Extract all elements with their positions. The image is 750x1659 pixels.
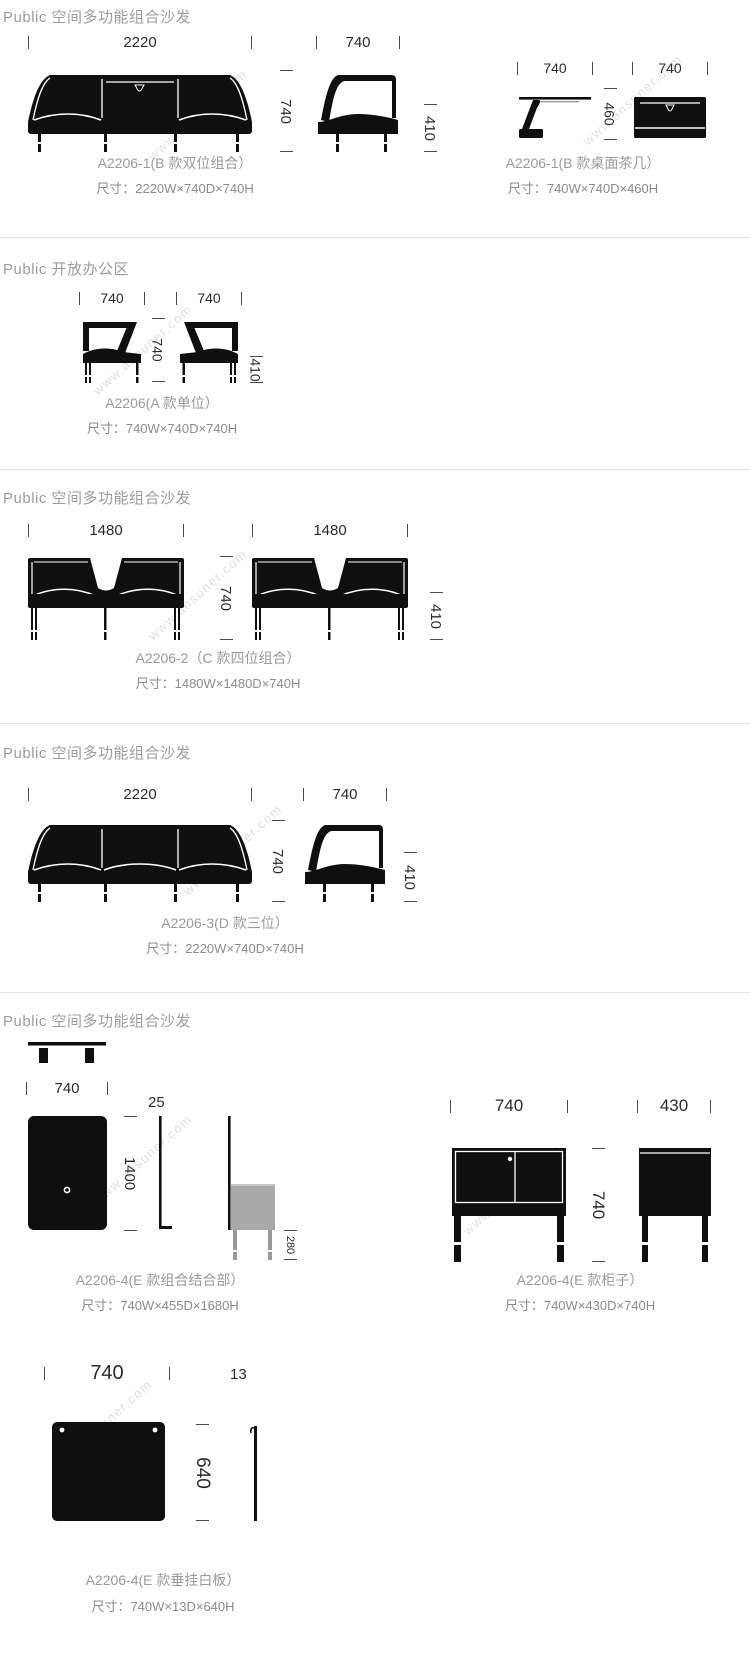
dim-value: 410 [422,115,439,140]
dim-sofa-seat-height: 410 [400,852,420,902]
whiteboard-side-view [248,1424,260,1521]
dim-value: 740 [100,290,123,306]
dim-tick [303,788,304,801]
product-label: A2206-4(E 款组合结合部） [40,1270,280,1290]
dim-tick [404,852,417,853]
dim-value: 740 [588,1191,608,1219]
dim-value: 740 [54,1080,79,1097]
dim-value: 740 [332,786,357,803]
dim-cabinet-height: 740 [588,1148,608,1262]
section-1-header: Public 空间多功能组合沙发 [3,6,191,27]
dim-tick [424,151,437,152]
section-divider [0,469,750,470]
dim-tick [316,36,317,49]
dim-value: 1400 [122,1157,139,1190]
product-label: A2206-4(E 款垂挂白板） [43,1570,283,1590]
panel-cabinet-side-view [226,1116,278,1261]
panel-front-view [28,1116,107,1230]
product-label: A2206-2（C 款四位组合） [98,648,338,668]
dim-cabinet-width: 740 [450,1096,568,1116]
dim-value: 280 [284,1236,296,1254]
dim-tick [280,151,293,152]
dim-chair-height: 740 [148,318,168,382]
dim-tick [284,1230,297,1231]
product-size: 尺寸：2220W×740D×740H [105,938,345,957]
dim-board-width: 740 [44,1362,170,1385]
dim-tick [604,139,617,140]
dim-tick [632,62,633,75]
dim-value: 1480 [313,522,346,539]
dim-tick [28,36,29,49]
section-divider [0,992,750,993]
dim-tick [592,1261,605,1262]
dim-tick [430,592,443,593]
product-size: 尺寸：740W×740D×460H [463,178,703,197]
cabinet-side-view [639,1148,711,1262]
dim-value: 740 [90,1362,123,1385]
dim-tick [280,70,293,71]
dim-panel-height: 1400 [120,1116,140,1231]
dim-board-thickness: 13 [230,1366,247,1383]
bench-top-view [28,1042,106,1064]
dim-tick [169,1367,170,1380]
dim-tick [250,382,263,383]
dim-tick [28,788,29,801]
coffee-table-side-view [519,95,591,141]
dim-tick [517,62,518,75]
dim-sofa-width: 2220 [28,34,252,51]
dim-tick [592,1148,605,1149]
product-label: A2206-3(D 款三位） [105,913,345,933]
dim-tick [284,1259,297,1260]
dim-value: 1480 [89,522,122,539]
bench-front-view-left [28,556,184,640]
dim-leg-height: 280 [280,1230,300,1260]
product-size: 尺寸：740W×430D×740H [460,1295,700,1314]
dim-tick [176,292,177,305]
panel-side-view [155,1116,173,1232]
dim-board-height: 640 [192,1424,212,1521]
dim-tick [107,1082,108,1095]
dim-value: 740 [218,585,235,610]
dim-chair-width-left: 740 [79,290,145,306]
dim-tick [399,36,400,49]
dim-tick [124,1116,137,1117]
chair-side-view-left [81,320,143,383]
section-divider [0,237,750,238]
section-3-header: Public 空间多功能组合沙发 [3,487,191,508]
dim-sofa-height: 740 [268,820,288,902]
product-label: A2206-1(B 款桌面茶几） [463,153,703,173]
dim-tick [144,292,145,305]
dim-value: 640 [191,1457,213,1489]
dim-tick [386,788,387,801]
section-5-header: Public 空间多功能组合沙发 [3,1010,191,1031]
product-label: A2206-1(B 款双位组合） [55,153,295,173]
dim-value: 740 [495,1096,523,1116]
dim-sofa-side-width: 740 [316,34,400,51]
product-size: 尺寸：1480W×1480D×740H [98,673,338,692]
sofa-front-view [28,820,252,902]
dim-value: 410 [428,603,445,628]
product-label: A2206-4(E 款柜子） [460,1270,700,1290]
dim-tick [252,524,253,537]
dim-tick [220,639,233,640]
dim-sofa-seat-height: 410 [420,104,440,152]
product-label: A2206(A 款单位） [42,393,282,413]
dim-tick [79,292,80,305]
dim-tick [26,1082,27,1095]
dim-panel-thickness: 25 [148,1094,165,1111]
chair-side-view-right [178,320,240,383]
dim-value: 740 [658,60,681,76]
dim-table-front-width: 740 [632,60,708,76]
dim-value: 740 [150,338,166,361]
dim-tick [430,639,443,640]
dim-tick [404,901,417,902]
section-divider [0,723,750,724]
dim-tick [567,1100,568,1113]
dim-tick [250,356,263,357]
dim-value: 410 [402,864,419,889]
dim-tick [124,1230,137,1231]
dim-tick [592,62,593,75]
dim-bench-width-right: 1480 [252,522,408,539]
dim-tick [196,1520,209,1521]
dim-tick [637,1100,638,1113]
dim-value: 410 [248,358,264,381]
dim-table-height: 460 [600,88,620,140]
dim-value: 740 [197,290,220,306]
bench-front-view-right [252,556,408,640]
dim-value: 2220 [123,34,156,51]
dim-value: 460 [602,102,618,125]
dim-panel-width: 740 [26,1080,108,1097]
dim-tick [44,1367,45,1380]
dim-chair-seat-height: 410 [246,356,266,383]
product-size: 尺寸：740W×740D×740H [42,418,282,437]
dim-tick [220,556,233,557]
section-4-header: Public 空间多功能组合沙发 [3,742,191,763]
dim-tick [604,88,617,89]
dim-value: 2220 [123,786,156,803]
dim-table-side-width: 740 [517,60,593,76]
dim-value: 430 [660,1096,688,1116]
dim-tick [707,62,708,75]
cabinet-front-view [452,1148,566,1262]
dim-tick [152,318,165,319]
sofa-side-view [305,820,385,902]
dim-bench-seat-height: 410 [426,592,446,640]
dim-tick [152,381,165,382]
dim-bench-height: 740 [216,556,236,640]
dim-sofa-height: 740 [276,70,296,152]
section-2-header: Public 开放办公区 [3,258,129,279]
dim-tick [407,524,408,537]
dim-tick [241,292,242,305]
dim-tick [424,104,437,105]
dim-value: 740 [543,60,566,76]
dim-value: 740 [345,34,370,51]
product-size: 尺寸：2220W×740D×740H [55,178,295,197]
dim-tick [28,524,29,537]
dim-value: 740 [278,98,295,123]
dim-tick [251,36,252,49]
coffee-table-front-view [634,95,706,141]
dim-bench-width-left: 1480 [28,522,184,539]
dim-chair-width-right: 740 [176,290,242,306]
dim-cabinet-depth: 430 [637,1096,711,1116]
dim-tick [251,788,252,801]
dim-tick [272,820,285,821]
dim-tick [196,1424,209,1425]
dim-value: 740 [270,848,287,873]
dim-tick [183,524,184,537]
dim-sofa-side-width: 740 [303,786,387,803]
dim-sofa-width: 2220 [28,786,252,803]
sofa-side-view [318,70,398,152]
catalog-page: Public 空间多功能组合沙发 www.ansuner.com www.ans… [0,0,750,1659]
product-size: 尺寸：740W×13D×640H [43,1596,283,1615]
dim-tick [272,901,285,902]
product-size: 尺寸：740W×455D×1680H [40,1295,280,1314]
dim-tick [450,1100,451,1113]
sofa-front-view [28,70,252,152]
dim-tick [710,1100,711,1113]
whiteboard-front-view [52,1422,165,1521]
